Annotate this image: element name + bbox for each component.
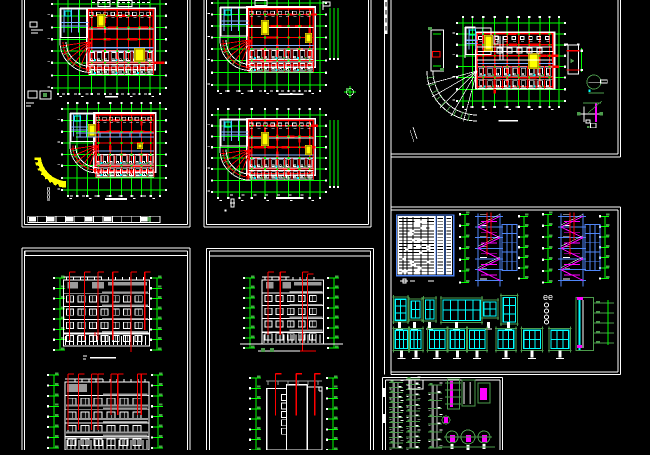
- svg-text:ee: ee: [543, 292, 553, 302]
